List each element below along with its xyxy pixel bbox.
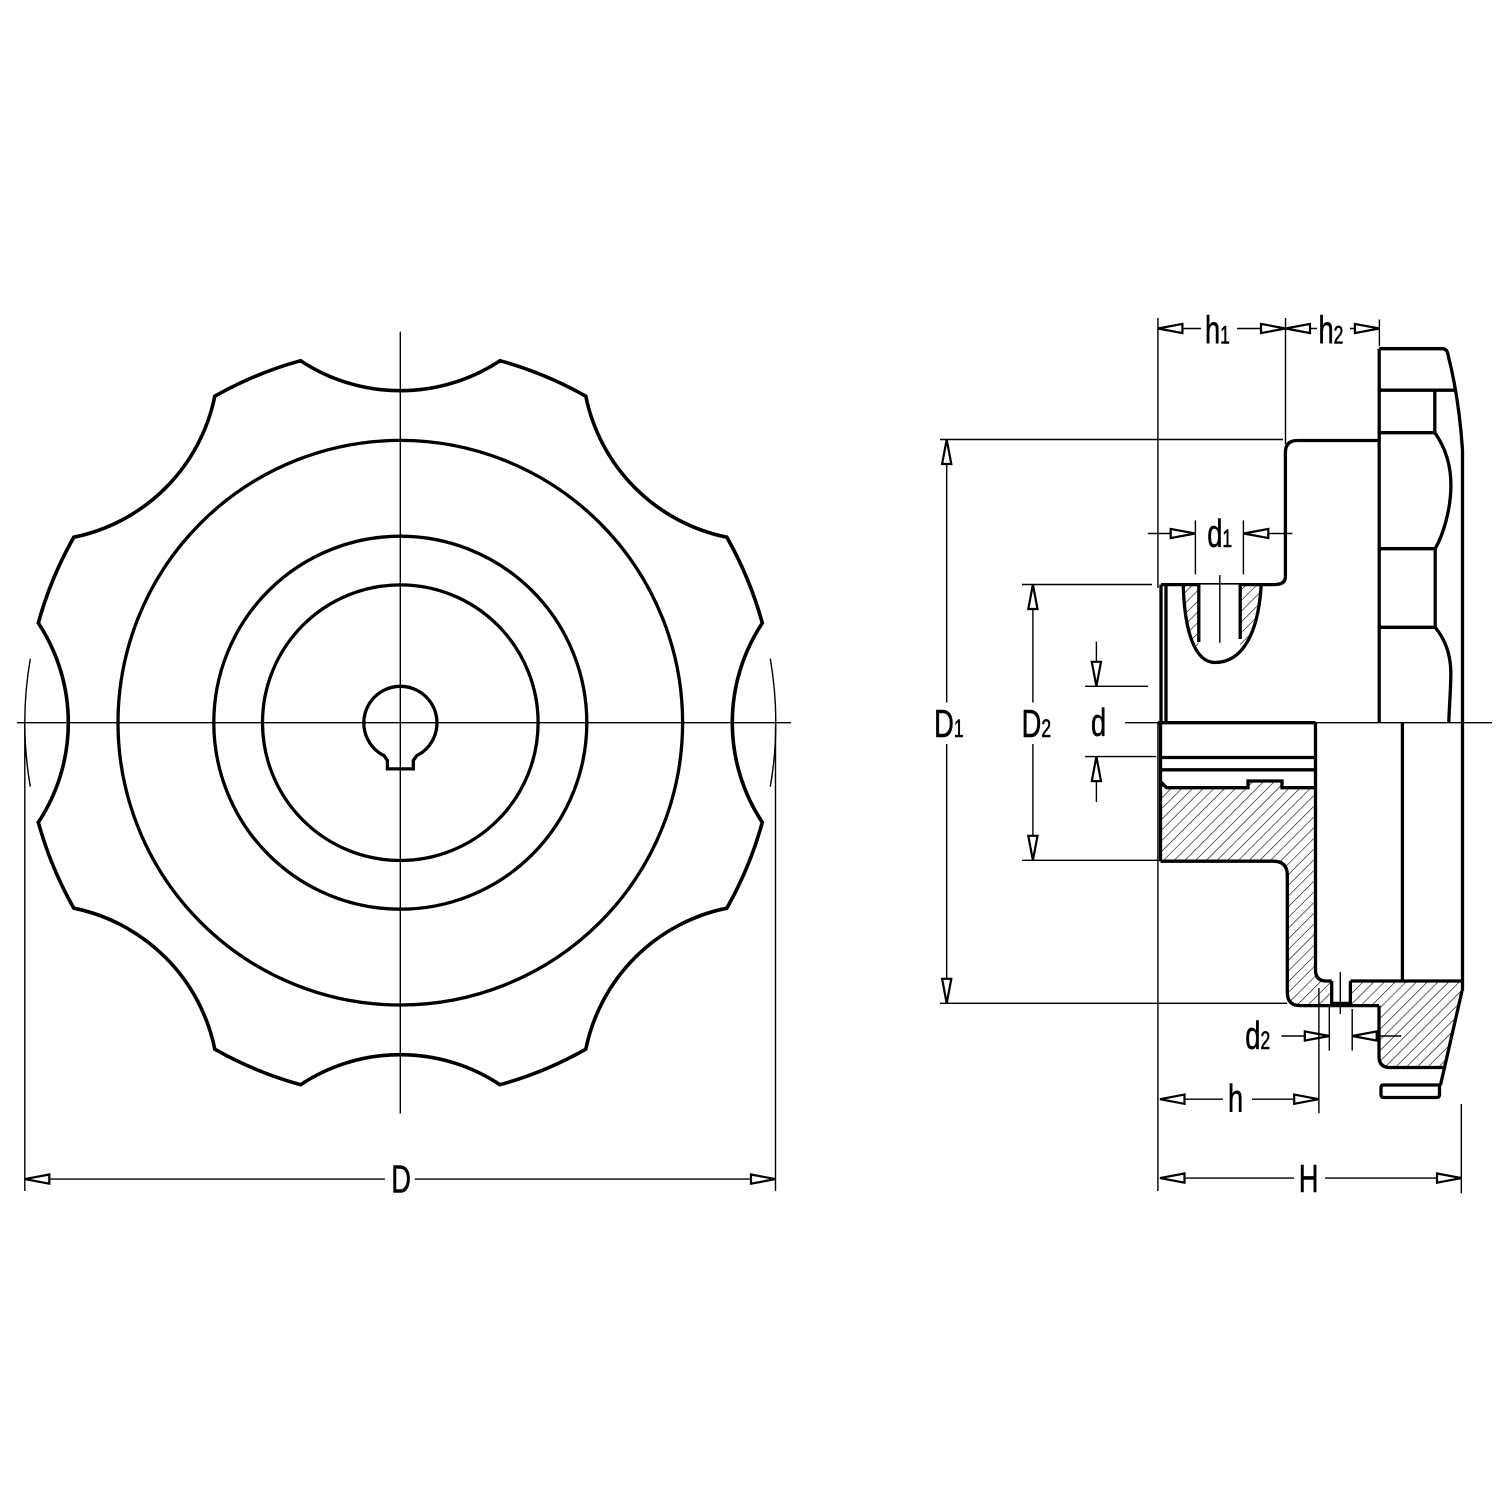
svg-text:d: d <box>1091 702 1106 745</box>
svg-text:D: D <box>391 1159 411 1202</box>
svg-text:d2: d2 <box>1245 1015 1270 1058</box>
svg-text:H: H <box>1299 1158 1319 1201</box>
svg-text:D1: D1 <box>934 703 963 746</box>
svg-text:h: h <box>1228 1078 1243 1121</box>
svg-text:h1: h1 <box>1205 310 1230 353</box>
svg-text:h2: h2 <box>1319 310 1344 353</box>
svg-text:D2: D2 <box>1022 703 1051 746</box>
svg-text:d1: d1 <box>1207 513 1232 556</box>
